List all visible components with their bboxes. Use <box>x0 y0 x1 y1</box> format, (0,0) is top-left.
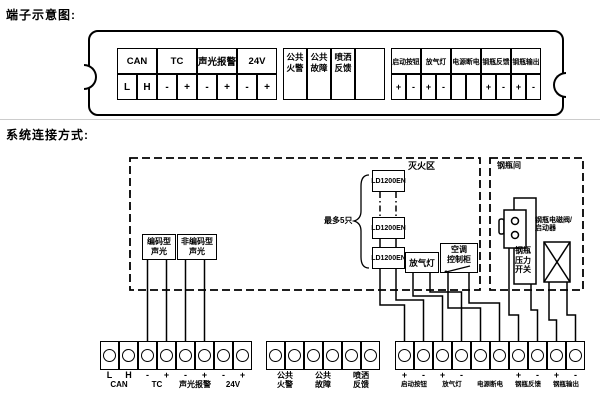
ac-control-cabinet-box: 空调 控制柜 <box>440 243 478 273</box>
middle-terminal-block <box>266 341 380 370</box>
terminal-screw <box>433 341 452 370</box>
middle-block-labels: 公共 火警 公共 故障 喷洒 反馈 <box>266 371 380 389</box>
right-block-labels: 启动按钮 放气灯 电源断电 钢瓶反馈 钢瓶输出 <box>395 381 585 388</box>
max-count-note: 最多5只 <box>324 216 352 226</box>
terminal-screw <box>304 341 323 370</box>
terminal-screw-icon <box>550 349 563 362</box>
coded-sounder-box: 编码型 声光 <box>142 234 176 260</box>
terminal-screw-icon <box>436 349 449 362</box>
terminal-screw-icon <box>512 349 525 362</box>
terminal-screw-icon <box>103 349 116 362</box>
terminal-screw-icon <box>364 349 377 362</box>
right-block-signs: + - + - + - + - <box>395 370 585 380</box>
terminal-screw-icon <box>217 349 230 362</box>
module-box-3: LD1200EN <box>372 247 405 269</box>
gas-release-lamp-box: 放气灯 <box>405 252 439 273</box>
left-block-labels: CAN TC 声光报警 24V <box>100 380 252 389</box>
terminal-screw <box>509 341 528 370</box>
switch-blade-icon <box>442 264 476 272</box>
terminal-screw <box>233 341 252 370</box>
pressure-switch-label: 钢瓶 压力 开关 <box>509 246 537 275</box>
terminal-screw <box>490 341 509 370</box>
terminal-screw-icon <box>198 349 211 362</box>
terminal-screw-icon <box>417 349 430 362</box>
zone-label: 灭火区 <box>408 161 435 172</box>
solenoid-label: 钢瓶电磁阀/ 启动器 <box>535 217 583 234</box>
terminal-screw <box>547 341 566 370</box>
terminal-screw-icon <box>569 349 582 362</box>
terminal-screw <box>395 341 414 370</box>
wiring-svg <box>0 0 600 400</box>
terminal-screw <box>414 341 433 370</box>
terminal-screw-icon <box>455 349 468 362</box>
wiring-diagram-page: 端子示意图: 系统连接方式: CAN L H TC - + 声光报警 - + <box>0 0 600 400</box>
right-terminal-block <box>395 341 585 370</box>
terminal-screw <box>566 341 585 370</box>
terminal-screw <box>471 341 490 370</box>
terminal-screw <box>285 341 304 370</box>
terminal-screw <box>452 341 471 370</box>
terminal-screw <box>138 341 157 370</box>
terminal-screw-icon <box>141 349 154 362</box>
terminal-screw-icon <box>269 349 282 362</box>
terminal-screw <box>528 341 547 370</box>
module-box-2: LD1200EN <box>372 217 405 239</box>
left-block-signs: L H - + - + - + <box>100 370 252 380</box>
terminal-screw-icon <box>179 349 192 362</box>
terminal-screw <box>176 341 195 370</box>
terminal-screw <box>214 341 233 370</box>
terminal-screw-icon <box>326 349 339 362</box>
terminal-screw <box>361 341 380 370</box>
max-count-brace <box>354 175 369 268</box>
terminal-screw <box>342 341 361 370</box>
pressure-switch-symbol <box>499 210 526 248</box>
terminal-screw-icon <box>122 349 135 362</box>
noncoded-sounder-box: 非编码型 声光 <box>177 234 217 260</box>
terminal-screw-icon <box>236 349 249 362</box>
left-terminal-block <box>100 341 252 370</box>
terminal-screw-icon <box>493 349 506 362</box>
terminal-screw-icon <box>307 349 320 362</box>
terminal-screw-icon <box>288 349 301 362</box>
terminal-screw-icon <box>345 349 358 362</box>
terminal-screw <box>119 341 138 370</box>
terminal-screw <box>157 341 176 370</box>
terminal-screw <box>266 341 285 370</box>
sounder-wires <box>148 260 205 341</box>
terminal-screw <box>100 341 119 370</box>
cylinder-room-label: 钢瓶间 <box>497 161 521 171</box>
solenoid-valve-symbol <box>544 242 570 282</box>
terminal-screw-icon <box>398 349 411 362</box>
terminal-screw <box>195 341 214 370</box>
module-box-1: LD1200EN <box>372 170 405 192</box>
terminal-screw <box>323 341 342 370</box>
terminal-screw-icon <box>531 349 544 362</box>
terminal-screw-icon <box>474 349 487 362</box>
terminal-screw-icon <box>160 349 173 362</box>
